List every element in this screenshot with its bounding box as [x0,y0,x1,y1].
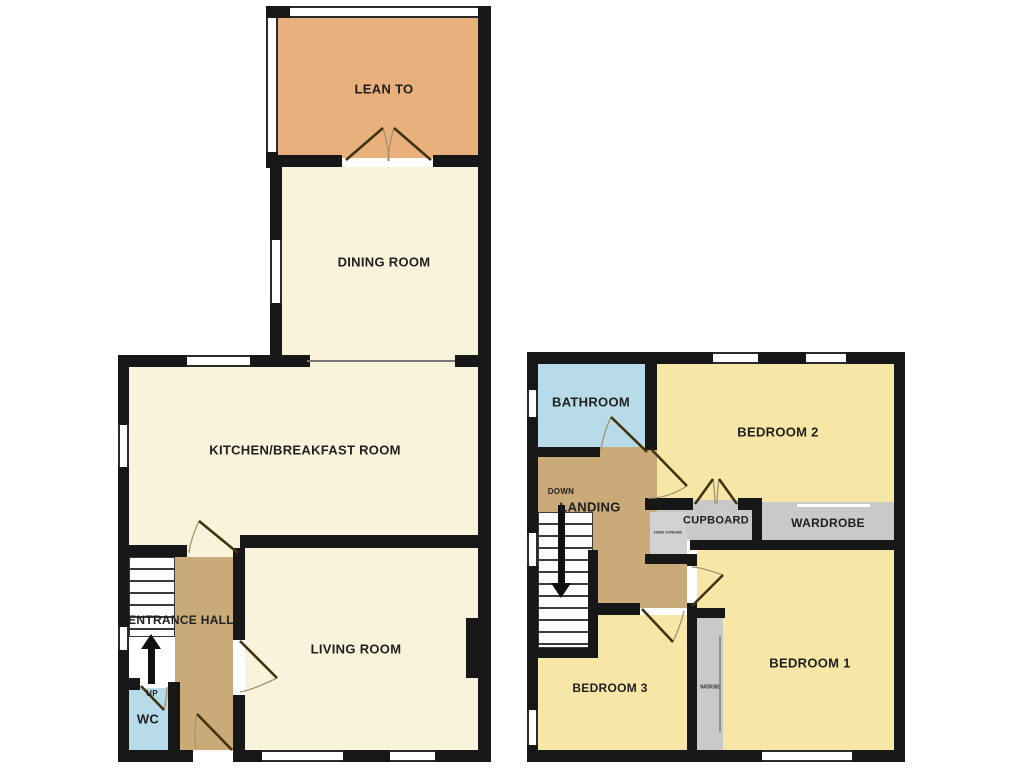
window [187,355,250,367]
wall [266,6,292,18]
wall [752,498,762,545]
label-down: DOWN [548,488,575,496]
window [193,750,233,762]
down-arrow-head [551,583,571,598]
wall [233,548,245,640]
divider-line [797,504,870,507]
room-bedroom-1 [697,550,894,752]
floor-plan-canvas: LEAN TODINING ROOMKITCHEN/BREAKFAST ROOM… [0,0,1024,768]
wall [894,352,905,762]
wall [466,618,480,678]
wall [270,167,282,240]
wall [645,364,657,450]
wall [118,355,129,762]
wall [538,447,600,457]
window [527,533,538,566]
room-bedroom-3-upper [598,615,687,658]
window [713,352,758,364]
wall [433,155,491,167]
window [118,627,129,650]
label-dining-room: DINING ROOM [338,256,431,269]
divider-line [307,360,455,362]
wall [645,498,693,510]
window [262,750,343,762]
window [266,18,278,152]
label-entrance-hall: ENTRANCE HALL [128,614,234,626]
label-cupboard: CUPBOARD [683,516,749,527]
label-kitchen-breakfast-room: KITCHEN/BREAKFAST ROOM [209,444,401,457]
wall [687,618,697,752]
label-living-room: LIVING ROOM [311,643,402,656]
wall [233,695,245,752]
label-lean-to: LEAN TO [355,83,414,96]
window [118,425,129,467]
window [270,240,282,303]
window [527,390,538,417]
label-wardrobe: WARDROBE [791,517,865,529]
room-entrance-hall [175,557,233,750]
wall [527,648,593,658]
wall [687,608,725,618]
up-arrow-head [141,634,161,649]
label-wc: WC [137,713,159,726]
window [806,352,846,364]
wall [266,155,342,167]
wall [168,682,180,752]
window [527,710,538,745]
wall [593,603,640,615]
label-bedroom-1: BEDROOM 1 [769,657,850,670]
wall [690,540,894,550]
up-arrow-shaft [148,648,155,684]
label-airing-cupboard: AIRING CUPBOARD [654,531,682,535]
window [762,750,852,762]
label-bathroom: BATHROOM [552,396,630,409]
label-up: UP [146,690,158,698]
wall [118,678,140,690]
wall [687,554,697,566]
down-arrow-shaft [558,505,565,584]
stairs-down [538,512,593,648]
wall [250,355,310,367]
room-bedroom-3-main [538,658,687,752]
label-landing: LANDING [559,501,620,514]
wall [175,545,183,557]
label-bedroom-3: BEDROOM 3 [572,682,647,694]
wall [240,535,478,548]
window [290,6,478,18]
wall [455,355,491,367]
window [390,750,435,762]
label-bedroom-2: BEDROOM 2 [737,426,818,439]
label-bedroom-1-wardrobe: WARDROBE [700,686,719,691]
wall [270,303,282,355]
